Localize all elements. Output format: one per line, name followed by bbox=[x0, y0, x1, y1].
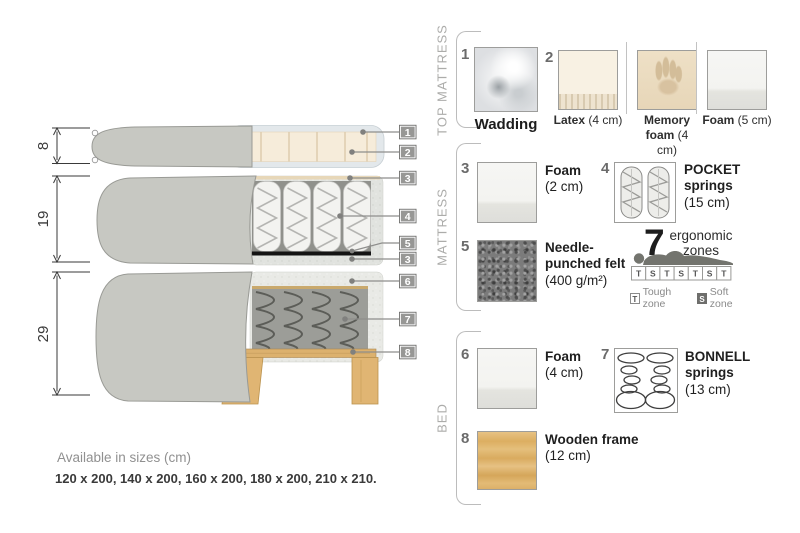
mattress-layer bbox=[97, 176, 383, 265]
callout-1: 1 bbox=[399, 125, 417, 140]
pocket-springs-thumbnail bbox=[614, 162, 676, 223]
measurement-29cm: 29 bbox=[35, 272, 90, 395]
foam-2cm-thumbnail bbox=[477, 162, 537, 223]
svg-text:1: 1 bbox=[405, 127, 411, 139]
callout-boxes: 1 2 3 4 5 3 6 7 8 bbox=[399, 125, 417, 359]
legend-tough-zone: TTough zone bbox=[630, 286, 688, 310]
svg-text:7: 7 bbox=[405, 314, 411, 326]
svg-text:6: 6 bbox=[405, 276, 411, 288]
section-title-bed: BED bbox=[435, 403, 450, 433]
legend-soft-zone: SSoft zone bbox=[697, 286, 747, 310]
bonnell-springs-icon bbox=[615, 349, 677, 412]
measurement-19cm-value: 19 bbox=[35, 211, 52, 228]
item-number-2: 2 bbox=[545, 49, 553, 66]
svg-text:8: 8 bbox=[405, 347, 411, 359]
ergonomic-zones-block: 7 ergonomic zones T S T S T S T bbox=[622, 220, 747, 305]
foam-5cm-thumbnail bbox=[707, 50, 767, 110]
callout-3: 3 bbox=[399, 171, 417, 186]
svg-text:5: 5 bbox=[405, 238, 411, 250]
available-sizes-list: 120 x 200, 140 x 200, 160 x 200, 180 x 2… bbox=[55, 471, 377, 486]
divider bbox=[696, 42, 697, 114]
measurement-29cm-value: 29 bbox=[35, 326, 52, 343]
wadding-thumbnail bbox=[474, 47, 538, 112]
callout-3b: 3 bbox=[399, 252, 417, 266]
divider bbox=[626, 42, 627, 114]
person-silhouette-icon bbox=[634, 251, 733, 265]
svg-text:S: S bbox=[650, 269, 656, 279]
item-number-7: 7 bbox=[601, 346, 609, 363]
item-number-1: 1 bbox=[461, 46, 469, 63]
bed-cross-section-diagram: 8 19 29 bbox=[0, 0, 430, 445]
item-number-5: 5 bbox=[461, 238, 469, 255]
bonnell-springs-thumbnail bbox=[614, 348, 678, 413]
section-title-top-mattress: TOP MATTRESS bbox=[435, 24, 450, 136]
latex-caption: Latex (4 cm) bbox=[528, 113, 648, 128]
svg-text:T: T bbox=[693, 269, 699, 279]
wooden-leg-right bbox=[352, 358, 378, 405]
section-title-mattress: MATTRESS bbox=[435, 188, 450, 266]
callout-5: 5 bbox=[399, 236, 417, 251]
measurement-19cm: 19 bbox=[35, 176, 90, 262]
soft-zone-icon: S bbox=[697, 293, 707, 304]
callout-4: 4 bbox=[399, 209, 417, 224]
measurement-8cm: 8 bbox=[35, 128, 90, 164]
ergonomic-zones-figure: T S T S T S T bbox=[626, 247, 740, 284]
svg-text:T: T bbox=[664, 269, 670, 279]
callout-8: 8 bbox=[399, 345, 417, 360]
svg-text:3: 3 bbox=[405, 254, 411, 266]
measurement-8cm-value: 8 bbox=[35, 142, 52, 150]
pocket-springs-icon bbox=[615, 163, 675, 222]
tough-zone-icon: T bbox=[630, 293, 640, 304]
wooden-frame-label: Wooden frame(12 cm) bbox=[545, 432, 675, 465]
svg-text:S: S bbox=[707, 269, 713, 279]
available-sizes-title: Available in sizes (cm) bbox=[57, 450, 191, 465]
latex-thumbnail bbox=[558, 50, 618, 110]
top-mattress-fabric bbox=[92, 126, 252, 167]
item-number-8: 8 bbox=[461, 430, 469, 447]
svg-text:4: 4 bbox=[405, 211, 411, 223]
foam-5cm-caption: Foam (5 cm) bbox=[677, 113, 797, 128]
zone-strip: T S T S T S T bbox=[632, 267, 731, 281]
bed-fabric bbox=[96, 272, 252, 402]
item-number-3: 3 bbox=[461, 160, 469, 177]
item-number-4: 4 bbox=[601, 160, 609, 177]
svg-text:3: 3 bbox=[405, 173, 411, 185]
callout-2: 2 bbox=[399, 145, 417, 160]
mattress-fabric bbox=[97, 176, 256, 264]
bonnell-springs-label: BONNELL springs(13 cm) bbox=[685, 349, 770, 398]
memory-foam-thumbnail bbox=[637, 50, 697, 110]
svg-text:T: T bbox=[636, 269, 642, 279]
svg-text:T: T bbox=[721, 269, 727, 279]
item-number-6: 6 bbox=[461, 346, 469, 363]
svg-text:S: S bbox=[678, 269, 684, 279]
felt-thumbnail bbox=[477, 240, 537, 302]
infographic-canvas: 8 19 29 bbox=[0, 0, 800, 533]
callout-6: 6 bbox=[399, 274, 417, 289]
svg-text:2: 2 bbox=[405, 147, 411, 159]
pocket-springs-label: POCKET springs(15 cm) bbox=[684, 162, 769, 211]
foam-4cm-thumbnail bbox=[477, 348, 537, 409]
callout-7: 7 bbox=[399, 312, 417, 327]
wooden-frame-thumbnail bbox=[477, 431, 537, 490]
zone-legend: TTough zone SSoft zone bbox=[630, 286, 747, 310]
top-mattress-layer bbox=[92, 126, 384, 168]
bed-layer bbox=[96, 272, 383, 404]
